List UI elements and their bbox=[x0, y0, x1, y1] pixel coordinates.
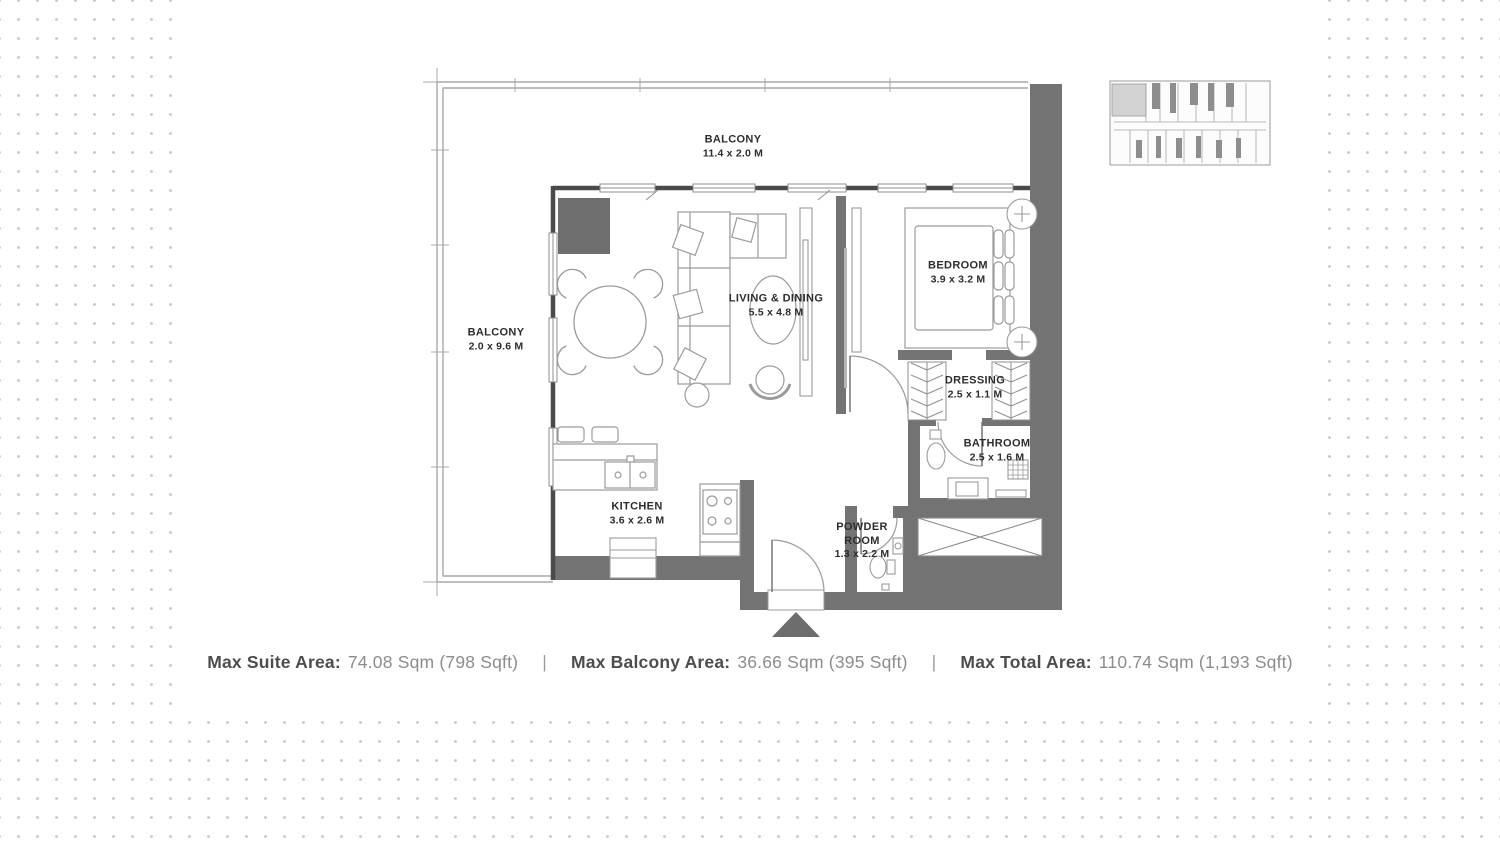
total-area-value: 110.74 Sqm (1,193 Sqft) bbox=[1099, 652, 1293, 672]
plan-canvas bbox=[183, 0, 1320, 712]
room-dims: 2.5 x 1.1 M bbox=[945, 388, 1005, 402]
room-label-dressing: DRESSING 2.5 x 1.1 M bbox=[945, 375, 1005, 402]
suite-area-value: 74.08 Sqm (798 Sqft) bbox=[348, 652, 518, 672]
room-dims: 5.5 x 4.8 M bbox=[729, 306, 823, 320]
page-background: { "plan": { "rooms": { "balcony_top": {"… bbox=[0, 0, 1500, 842]
room-label-balcony-top: BALCONY 11.4 x 2.0 M bbox=[703, 134, 763, 161]
room-name: POWDER bbox=[835, 521, 890, 535]
room-dims: 2.5 x 1.6 M bbox=[964, 451, 1031, 465]
total-area-label: Max Total Area: bbox=[960, 652, 1091, 672]
room-name: DRESSING bbox=[945, 375, 1005, 389]
room-name: KITCHEN bbox=[610, 501, 665, 515]
room-dims: 3.6 x 2.6 M bbox=[610, 514, 665, 528]
room-name: BATHROOM bbox=[964, 438, 1031, 452]
room-dims: 11.4 x 2.0 M bbox=[703, 147, 763, 161]
suite-area-label: Max Suite Area: bbox=[207, 652, 341, 672]
room-name: BALCONY bbox=[703, 134, 763, 148]
room-name: BALCONY bbox=[468, 327, 525, 341]
room-label-bathroom: BATHROOM 2.5 x 1.6 M bbox=[964, 438, 1031, 465]
room-label-powder-room: POWDER ROOM 1.3 x 2.2 M bbox=[835, 521, 890, 562]
balcony-area-label: Max Balcony Area: bbox=[571, 652, 730, 672]
room-label-living-dining: LIVING & DINING 5.5 x 4.8 M bbox=[729, 293, 823, 320]
room-label-balcony-left: BALCONY 2.0 x 9.6 M bbox=[468, 327, 525, 354]
room-dims: 3.9 x 3.2 M bbox=[928, 273, 988, 287]
summary-separator: | bbox=[542, 652, 547, 672]
room-name: ROOM bbox=[835, 534, 890, 548]
room-name: LIVING & DINING bbox=[729, 293, 823, 307]
summary-separator: | bbox=[932, 652, 937, 672]
balcony-area-value: 36.66 Sqm (395 Sqft) bbox=[737, 652, 907, 672]
room-dims: 1.3 x 2.2 M bbox=[835, 548, 890, 562]
room-label-bedroom: BEDROOM 3.9 x 3.2 M bbox=[928, 260, 988, 287]
area-summary: Max Suite Area:74.08 Sqm (798 Sqft)|Max … bbox=[0, 652, 1500, 673]
room-name: BEDROOM bbox=[928, 260, 988, 274]
room-dims: 2.0 x 9.6 M bbox=[468, 340, 525, 354]
room-label-kitchen: KITCHEN 3.6 x 2.6 M bbox=[610, 501, 665, 528]
